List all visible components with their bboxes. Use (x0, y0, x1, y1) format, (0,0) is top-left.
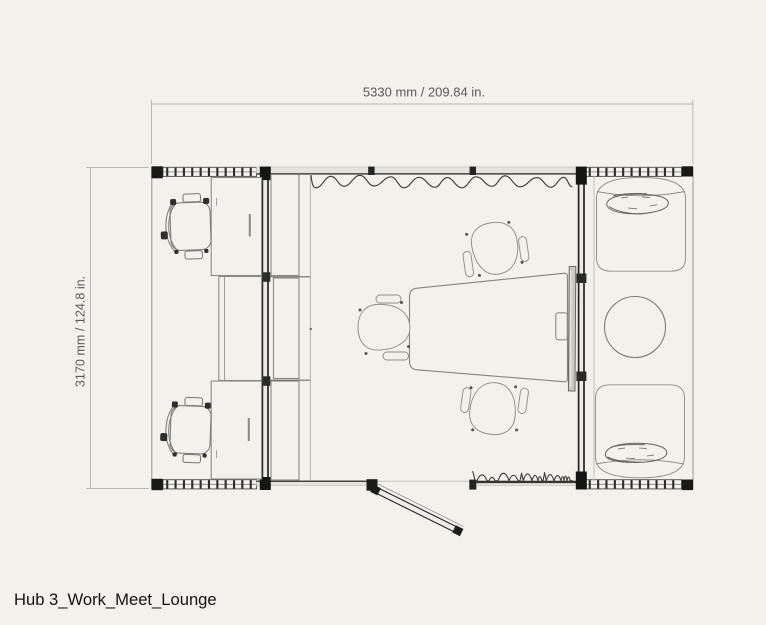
svg-text:5330 mm / 209.84 in.: 5330 mm / 209.84 in. (363, 85, 485, 100)
svg-text:Hub 3_Work_Meet_Lounge: Hub 3_Work_Meet_Lounge (14, 590, 217, 609)
svg-text:3170 mm / 124.8 in.: 3170 mm / 124.8 in. (74, 276, 88, 387)
